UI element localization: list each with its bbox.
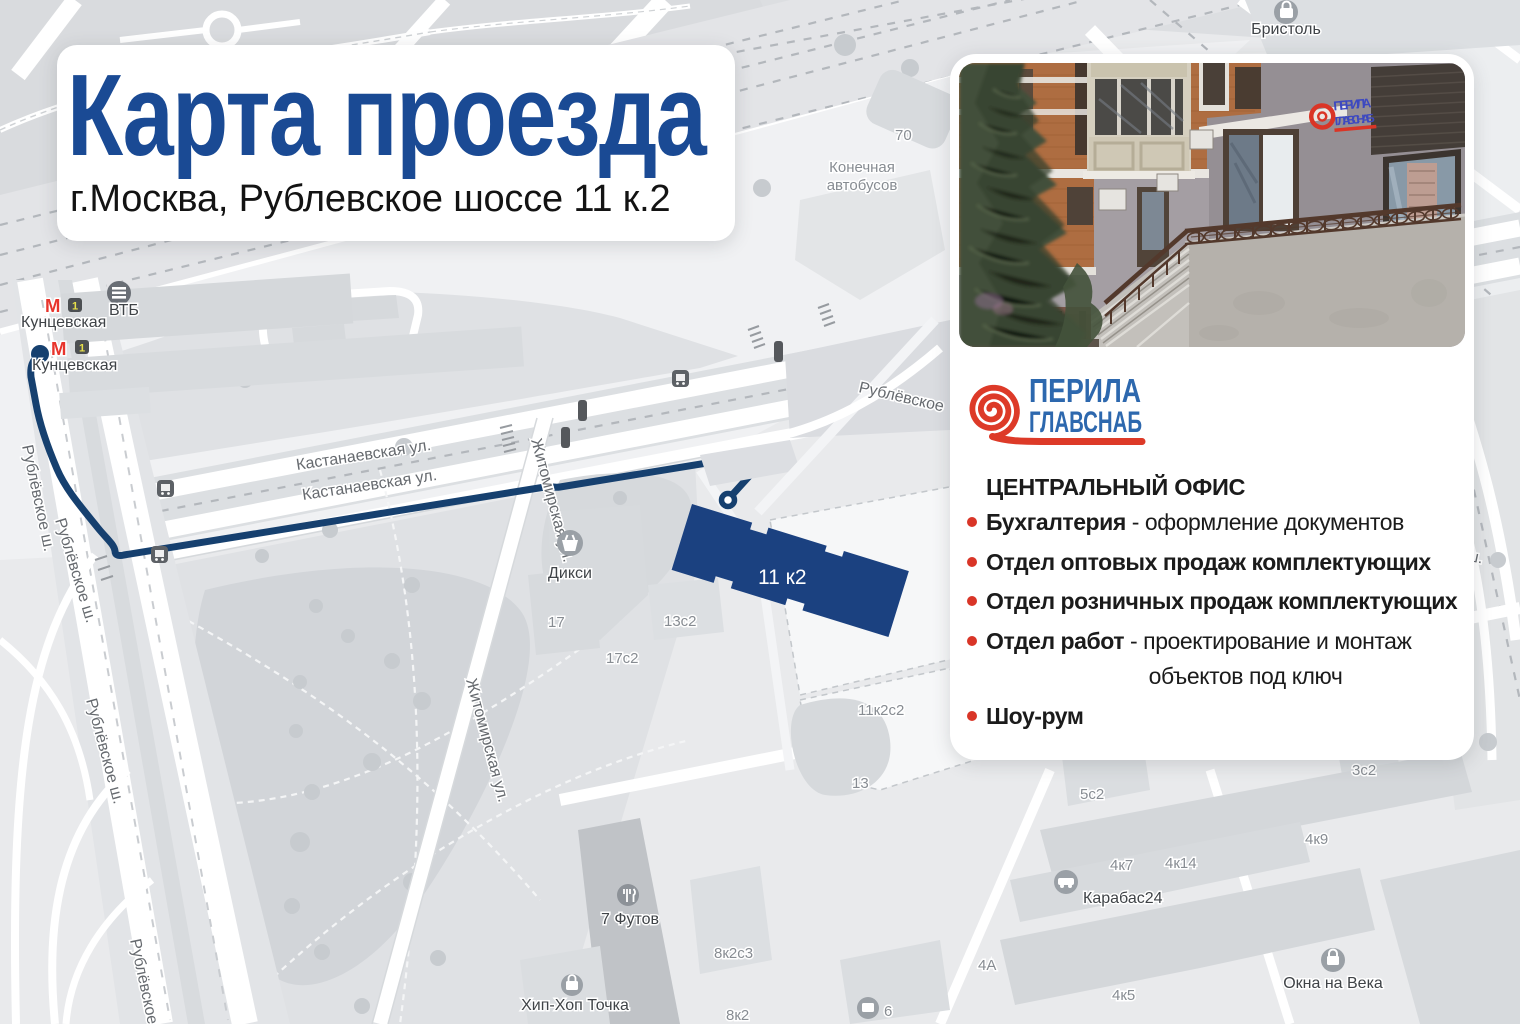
svg-text:Кунцевская: Кунцевская xyxy=(21,314,106,331)
svg-text:Окна на Века: Окна на Века xyxy=(1283,975,1383,992)
svg-text:6: 6 xyxy=(884,1003,892,1020)
svg-text:13с2: 13с2 xyxy=(664,613,697,630)
svg-text:3с2: 3с2 xyxy=(1352,762,1376,779)
svg-text:11к2с2: 11к2с2 xyxy=(858,702,904,719)
svg-text:1: 1 xyxy=(79,343,85,355)
svg-text:4к9: 4к9 xyxy=(1305,831,1328,848)
svg-text:13: 13 xyxy=(852,775,869,792)
svg-text:Дикси: Дикси xyxy=(548,565,592,582)
svg-text:М: М xyxy=(45,295,60,316)
svg-text:17с2: 17с2 xyxy=(606,650,639,667)
svg-text:Бристоль: Бристоль xyxy=(1251,21,1321,38)
svg-text:17: 17 xyxy=(548,614,565,631)
svg-text:1: 1 xyxy=(72,301,78,313)
svg-text:8к2: 8к2 xyxy=(726,1007,749,1024)
svg-text:ГЛАВСНАБ: ГЛАВСНАБ xyxy=(1029,406,1142,439)
svg-text:4к14: 4к14 xyxy=(1165,855,1197,872)
svg-text:М: М xyxy=(51,338,66,359)
svg-text:70: 70 xyxy=(895,127,912,144)
svg-text:11 к2: 11 к2 xyxy=(758,566,807,589)
svg-text:ПЕРИЛА: ПЕРИЛА xyxy=(1029,372,1141,409)
svg-text:4к7: 4к7 xyxy=(1110,857,1133,874)
svg-text:5с2: 5с2 xyxy=(1080,786,1104,803)
svg-text:ВТБ: ВТБ xyxy=(109,302,139,319)
svg-text:8к2с3: 8к2с3 xyxy=(714,945,753,962)
svg-text:Хип-Хоп Точка: Хип-Хоп Точка xyxy=(521,997,629,1014)
svg-text:Кунцевская: Кунцевская xyxy=(32,357,117,374)
svg-text:4к5: 4к5 xyxy=(1112,987,1135,1004)
svg-text:7 Футов: 7 Футов xyxy=(601,911,659,928)
svg-text:Конечная: Конечная xyxy=(829,159,895,176)
svg-text:4А: 4А xyxy=(978,957,996,974)
svg-text:автобусов: автобусов xyxy=(827,177,898,194)
svg-text:Карабас24: Карабас24 xyxy=(1083,890,1163,907)
